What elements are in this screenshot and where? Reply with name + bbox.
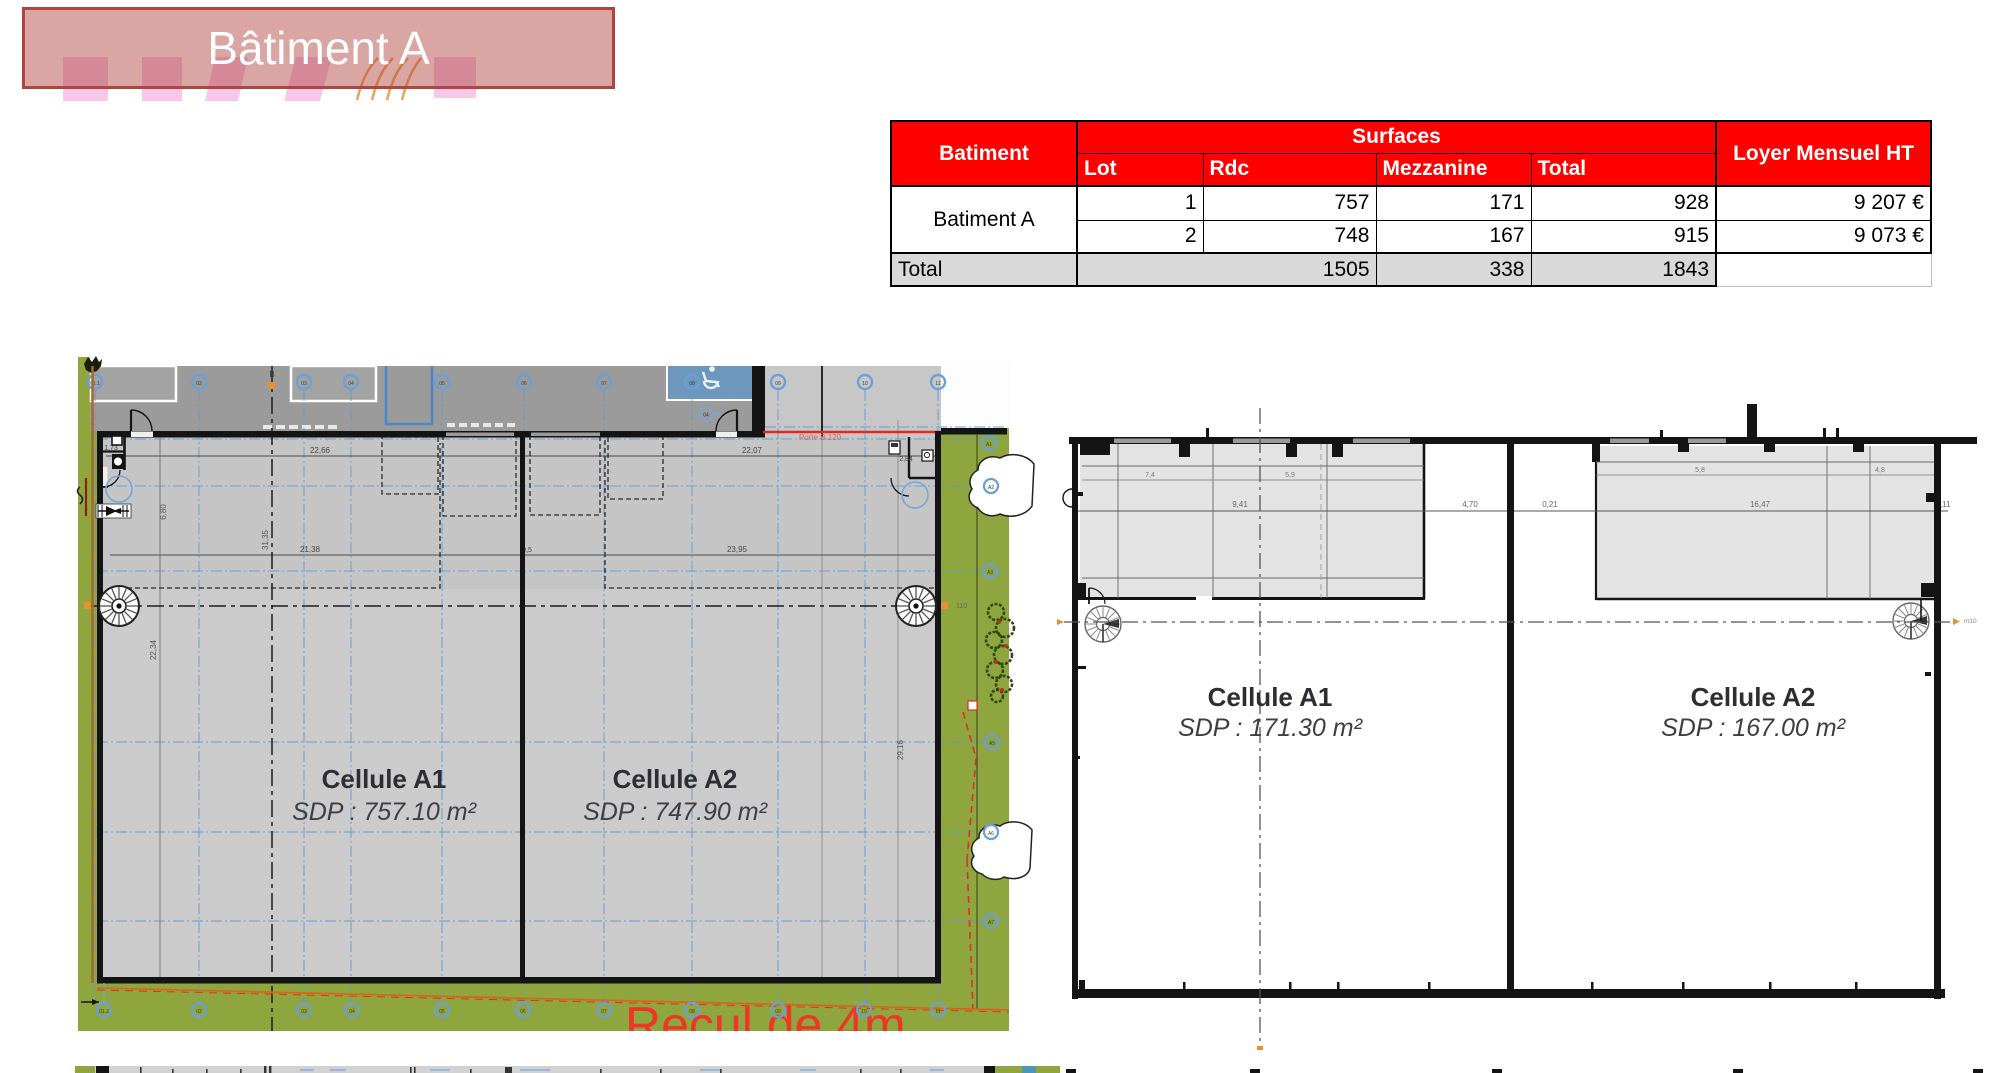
svg-text:Cellule A1: Cellule A1 xyxy=(1208,682,1333,712)
svg-text:4,70: 4,70 xyxy=(1462,500,1478,509)
svg-text:22,07: 22,07 xyxy=(742,446,763,455)
svg-text:2,84: 2,84 xyxy=(899,456,913,463)
svg-text:22,34: 22,34 xyxy=(149,639,158,660)
svg-text:Cellule A2: Cellule A2 xyxy=(613,764,738,794)
svg-text:0,21: 0,21 xyxy=(1542,500,1558,509)
svg-text:09: 09 xyxy=(775,381,781,387)
svg-text:110: 110 xyxy=(956,603,967,610)
svg-text:A6: A6 xyxy=(988,831,994,837)
svg-text:SDP : 171.30 m²: SDP : 171.30 m² xyxy=(1178,714,1364,742)
svg-text:6,80: 6,80 xyxy=(159,504,168,520)
svg-text:10: 10 xyxy=(861,1009,867,1015)
svg-text:11: 11 xyxy=(935,381,940,387)
svg-text:01.2: 01.2 xyxy=(99,1009,109,1015)
svg-text:5,8: 5,8 xyxy=(1695,467,1705,474)
svg-text:02: 02 xyxy=(196,381,202,387)
svg-text:07: 07 xyxy=(601,381,607,387)
svg-text:07: 07 xyxy=(601,1009,607,1015)
svg-text:05: 05 xyxy=(439,1009,445,1015)
svg-text:Cellule A2: Cellule A2 xyxy=(1691,682,1816,712)
svg-text:29,16: 29,16 xyxy=(896,739,905,760)
svg-text:Porte B 120: Porte B 120 xyxy=(799,433,842,442)
svg-text:7,4: 7,4 xyxy=(1145,472,1155,479)
svg-text:Cellule A1: Cellule A1 xyxy=(322,764,447,794)
svg-text:A3: A3 xyxy=(987,570,993,576)
svg-text:4,8: 4,8 xyxy=(1875,467,1885,474)
svg-text:03: 03 xyxy=(301,381,307,387)
svg-text:06: 06 xyxy=(520,1009,526,1015)
svg-text:04: 04 xyxy=(349,1009,355,1015)
svg-text:08: 08 xyxy=(689,381,695,387)
svg-text:SDP : 757.10 m²: SDP : 757.10 m² xyxy=(292,798,478,826)
svg-text:09: 09 xyxy=(775,1009,781,1015)
svg-text:B: B xyxy=(269,370,274,379)
svg-text:SDP : 747.90 m²: SDP : 747.90 m² xyxy=(583,798,769,826)
svg-text:A7: A7 xyxy=(988,920,994,926)
svg-text:5,9: 5,9 xyxy=(1285,472,1295,479)
svg-text:22,66: 22,66 xyxy=(310,446,331,455)
svg-text:A1: A1 xyxy=(986,442,992,448)
svg-text:m10: m10 xyxy=(1964,618,1977,625)
svg-text:04: 04 xyxy=(348,381,354,387)
svg-text:A2: A2 xyxy=(988,485,994,491)
svg-text:03: 03 xyxy=(301,1009,307,1015)
svg-text:05: 05 xyxy=(439,381,445,387)
svg-text:11: 11 xyxy=(935,1009,940,1015)
svg-text:06: 06 xyxy=(521,381,527,387)
svg-text:04: 04 xyxy=(703,413,709,419)
svg-text:A5: A5 xyxy=(989,741,995,747)
svg-text:02: 02 xyxy=(196,1009,202,1015)
svg-text:9,41: 9,41 xyxy=(1232,500,1248,509)
svg-text:SDP : 167.00 m²: SDP : 167.00 m² xyxy=(1661,714,1847,742)
svg-text:10: 10 xyxy=(862,381,868,387)
svg-text:21,38: 21,38 xyxy=(300,545,321,554)
svg-text:08: 08 xyxy=(689,1009,695,1015)
svg-text:16,47: 16,47 xyxy=(1750,500,1771,509)
svg-text:23,95: 23,95 xyxy=(727,545,748,554)
svg-text:31,35: 31,35 xyxy=(261,529,270,550)
